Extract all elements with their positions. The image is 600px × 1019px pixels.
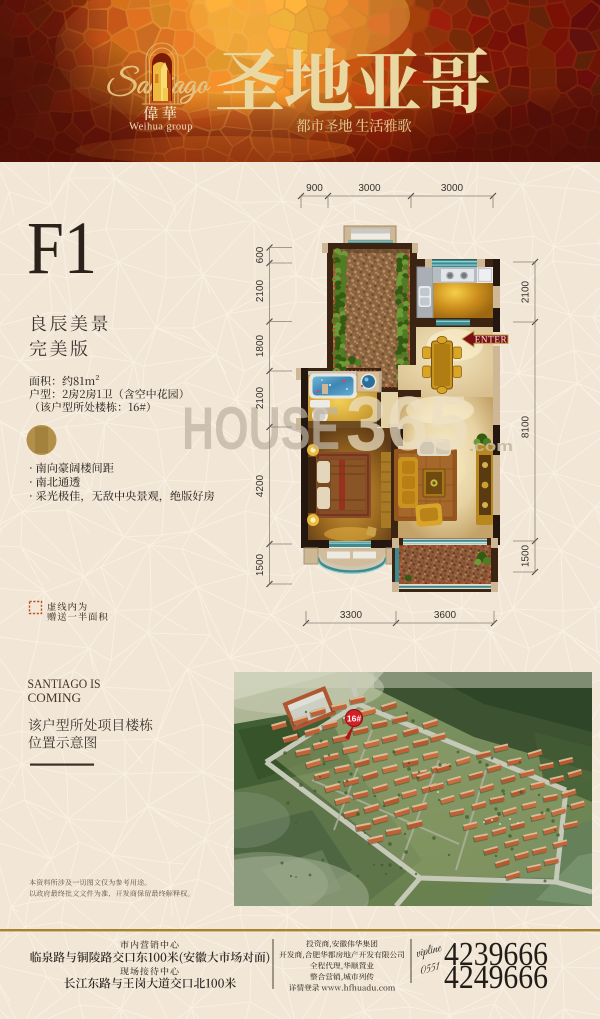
svg-text:600: 600	[255, 246, 266, 263]
svg-text:3000: 3000	[441, 183, 464, 194]
svg-text:1500: 1500	[255, 553, 266, 576]
svg-text:F1: F1	[27, 207, 97, 290]
svg-text:1500: 1500	[521, 544, 532, 567]
svg-text:4249666: 4249666	[444, 959, 548, 996]
svg-text:2100: 2100	[255, 386, 266, 409]
svg-text:16#: 16#	[347, 714, 361, 724]
svg-text:365: 365	[346, 381, 469, 467]
svg-text:Weihua group: Weihua group	[129, 122, 193, 133]
svg-text:900: 900	[306, 183, 323, 194]
svg-text:4200: 4200	[255, 474, 266, 497]
svg-text:1800: 1800	[255, 334, 266, 357]
svg-text:SANTIAGO IS: SANTIAGO IS	[28, 676, 101, 691]
svg-text:ENTER: ENTER	[475, 335, 508, 345]
svg-text:3600: 3600	[434, 610, 457, 621]
svg-text:2100: 2100	[521, 280, 532, 303]
svg-text:.com: .com	[469, 439, 513, 455]
svg-text:3300: 3300	[340, 610, 363, 621]
svg-text:COMING: COMING	[28, 690, 82, 705]
svg-text:3000: 3000	[358, 183, 381, 194]
svg-text:2100: 2100	[255, 279, 266, 302]
svg-text:8100: 8100	[521, 415, 532, 438]
